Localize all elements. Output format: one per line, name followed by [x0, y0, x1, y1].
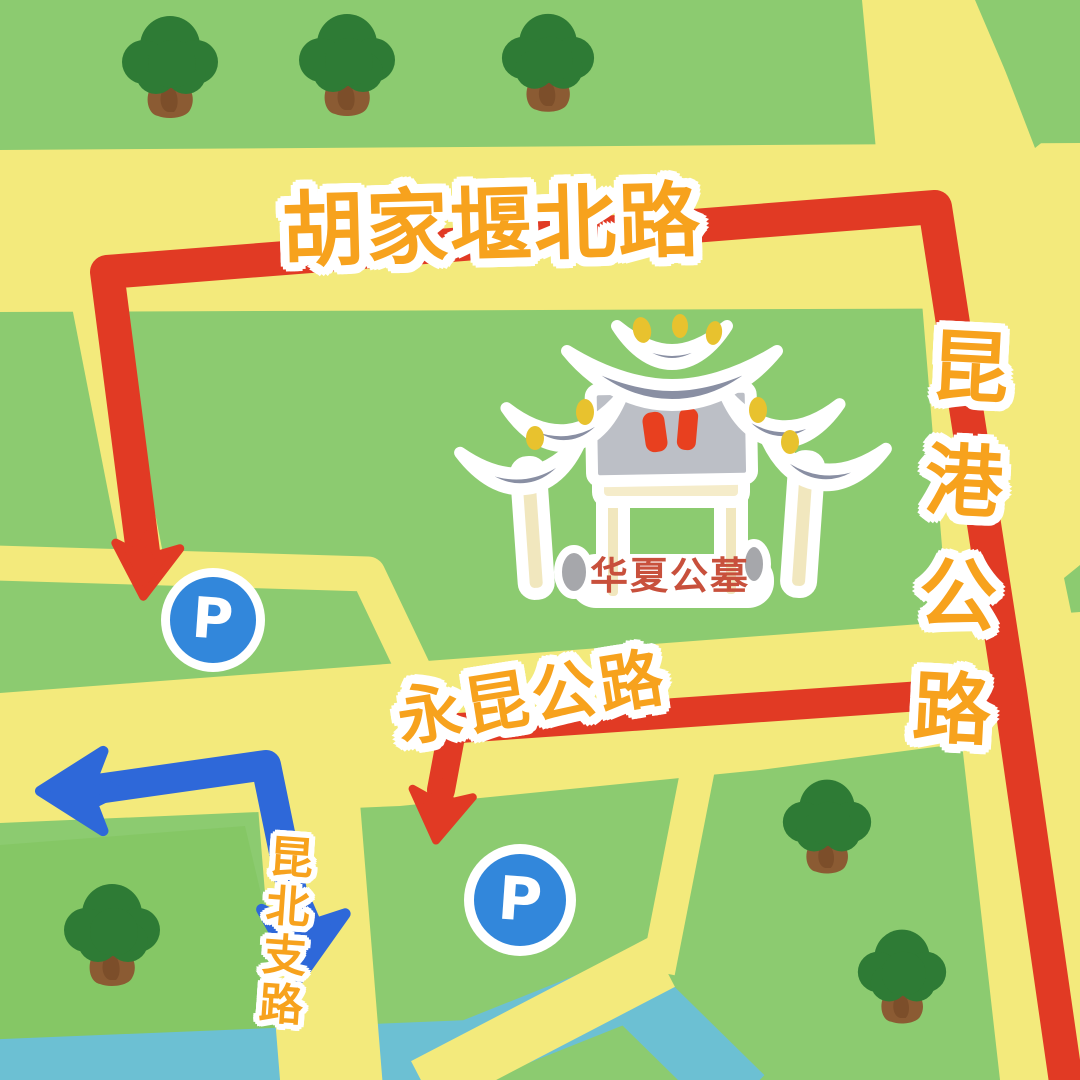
road-label-kunbei-branch: 昆北支路 — [252, 832, 310, 1031]
parking-icon-south: P — [464, 844, 576, 956]
route-map: P P 胡家堰北路 昆港公路 永昆公路 昆北支路 华夏公墓 — [0, 0, 1080, 1080]
parking-letter: P — [190, 586, 235, 654]
parking-icon-circle: P — [170, 577, 255, 662]
parking-icon-north: P — [161, 568, 265, 672]
road-label-kungang-highway: 昆港公路 — [902, 324, 1004, 783]
gate-stone-left — [558, 549, 590, 595]
parking-icon-circle: P — [474, 854, 566, 946]
gate-plaque-mark-2 — [676, 407, 699, 450]
road-label-hujiayan-north: 胡家堰北路 — [281, 181, 703, 274]
cemetery-label: 华夏公墓 — [590, 557, 750, 595]
parking-letter: P — [496, 864, 545, 937]
